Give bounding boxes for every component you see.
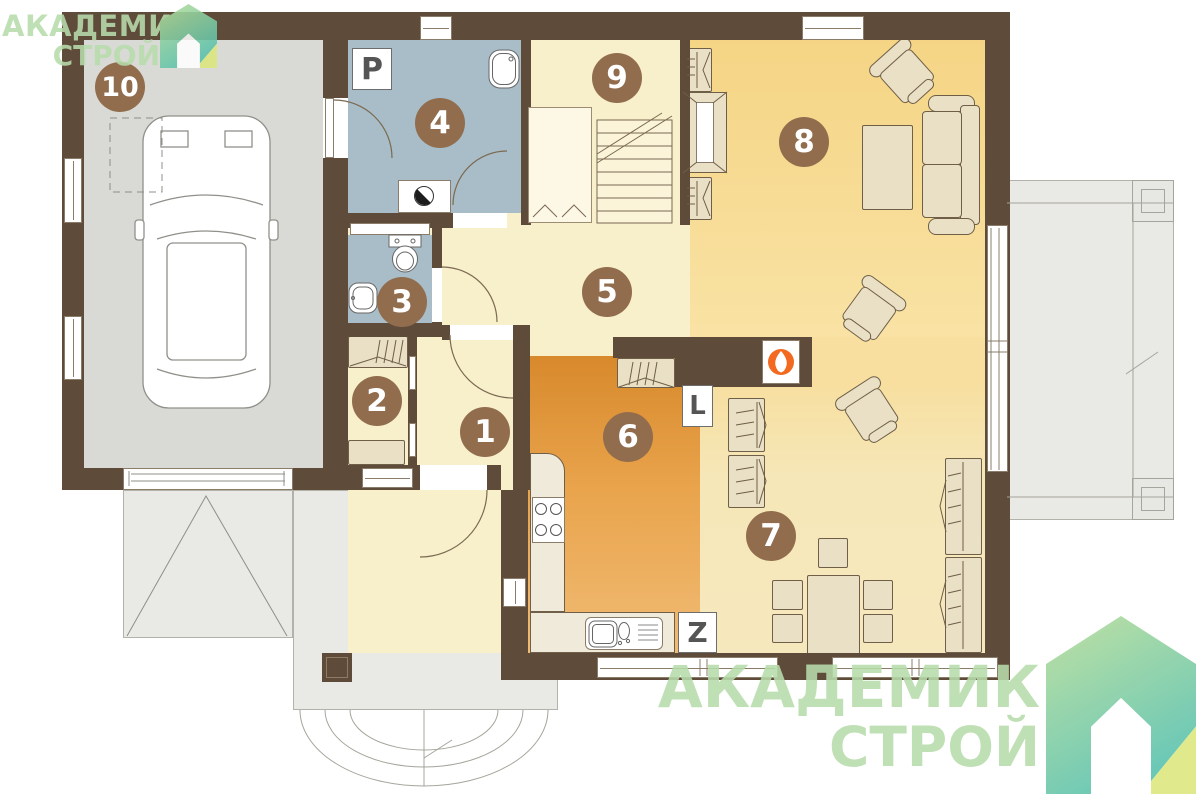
window	[362, 468, 413, 488]
sofa-back	[960, 105, 980, 225]
window	[503, 578, 526, 607]
bench	[348, 440, 405, 465]
wall-wc-east-upper	[432, 222, 442, 268]
brand-logo-bottom: АКАДЕМИК СТРОЙ	[640, 614, 1196, 800]
coffee-table	[862, 125, 913, 210]
window	[420, 16, 452, 40]
wall-garage-west	[62, 12, 84, 490]
appliance-label-p: P	[352, 48, 392, 90]
badge-room-2: 2	[352, 376, 402, 426]
kitchen-cabinet	[617, 358, 675, 388]
door-opening-wc	[432, 268, 442, 322]
badge-room-1: 1	[460, 407, 510, 457]
sideboard	[945, 458, 982, 555]
badge-room-5: 5	[582, 267, 632, 317]
wall-hall-room1-stub	[442, 325, 450, 340]
appliance-label-l: L	[682, 385, 713, 427]
window	[802, 16, 864, 40]
sofa-seat	[922, 111, 962, 165]
wall-room1-east	[513, 325, 530, 490]
garage-door	[123, 468, 293, 490]
badge-room-7: 7	[746, 511, 796, 561]
chair	[818, 538, 848, 568]
brand-name-2: СТРОЙ	[640, 720, 1040, 775]
door-leaf-room2	[409, 423, 416, 457]
badge-room-4: 4	[415, 98, 465, 148]
washing-machine	[398, 180, 451, 213]
brand-logo-top: АКАДЕМИК СТРОЙ	[0, 4, 220, 70]
terrace-window	[987, 225, 1008, 472]
front-door-opening	[420, 465, 487, 490]
window	[64, 158, 82, 223]
brand-house-icon	[160, 4, 217, 68]
sideboard	[728, 398, 765, 452]
wall-niche	[350, 223, 430, 235]
brand-name-2: СТРОЙ	[0, 42, 160, 70]
fireplace	[762, 340, 800, 384]
terrace-pillar	[1132, 180, 1174, 222]
badge-room-6: 6	[603, 412, 653, 462]
wall-stairs-living	[680, 40, 690, 225]
brand-name: АКАДЕМИК	[640, 658, 1040, 716]
stove	[532, 497, 565, 543]
porch-steps	[300, 710, 548, 786]
terrace-pillar	[1132, 478, 1174, 520]
terrace	[1007, 180, 1174, 520]
badge-room-9: 9	[592, 53, 642, 103]
sofa-seat	[922, 164, 962, 218]
driveway	[123, 490, 293, 638]
wall-kitchen-west	[501, 490, 528, 653]
badge-room-3: 3	[377, 277, 427, 327]
badge-room-8: 8	[779, 117, 829, 167]
chair	[863, 580, 893, 610]
chair	[772, 580, 803, 610]
wardrobe	[348, 336, 408, 368]
sofa-armrest	[928, 218, 975, 235]
door-leaf	[325, 98, 334, 158]
stairs-landing	[528, 107, 592, 223]
door-opening-room1	[450, 325, 513, 340]
door-opening-utility-hall	[453, 213, 507, 228]
window	[64, 316, 82, 380]
tv	[696, 102, 714, 163]
porch-pillar	[322, 653, 352, 682]
living-room-floor-ext	[812, 337, 985, 387]
door-leaf-room2	[409, 356, 416, 390]
brand-house-icon	[1046, 616, 1196, 794]
floor-plan: P L Z	[0, 0, 1196, 800]
sideboard	[728, 455, 765, 508]
